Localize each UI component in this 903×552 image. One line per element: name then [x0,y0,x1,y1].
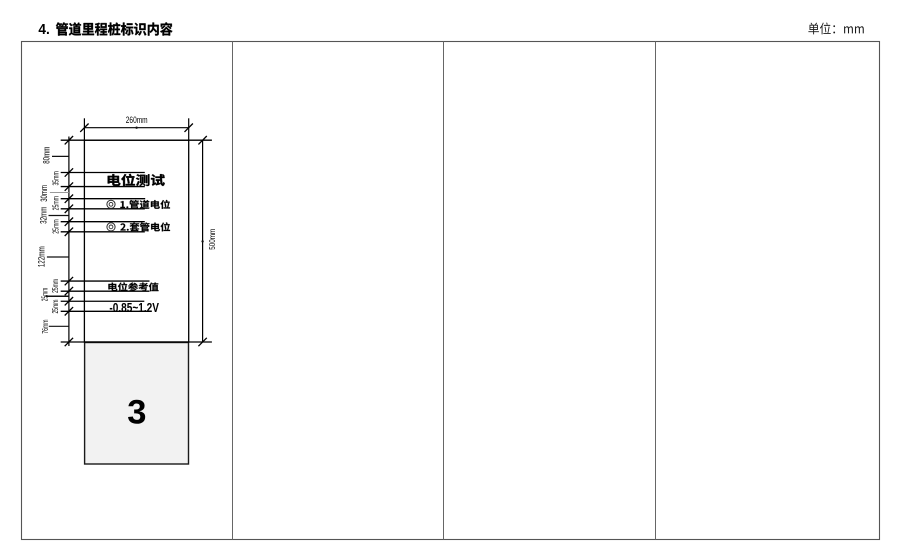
svg-text:25mm: 25mm [51,219,60,234]
svg-text:4.: 4. [38,21,49,38]
svg-text:30mm: 30mm [39,185,50,202]
svg-text:80mm: 80mm [41,147,52,164]
svg-text:25mm: 25mm [41,288,50,302]
svg-text:35mm: 35mm [51,171,60,185]
svg-text:32mm: 32mm [38,207,49,224]
svg-text:260mm: 260mm [126,115,148,125]
svg-text:500mm: 500mm [207,229,217,250]
svg-text:-0.85~1.2V: -0.85~1.2V [109,300,159,315]
svg-text:25mm: 25mm [51,196,60,211]
svg-text:25mm: 25mm [51,279,60,293]
svg-text:25mm: 25mm [51,299,60,313]
svg-text:122mm: 122mm [37,246,48,267]
svg-text:3: 3 [127,394,146,432]
